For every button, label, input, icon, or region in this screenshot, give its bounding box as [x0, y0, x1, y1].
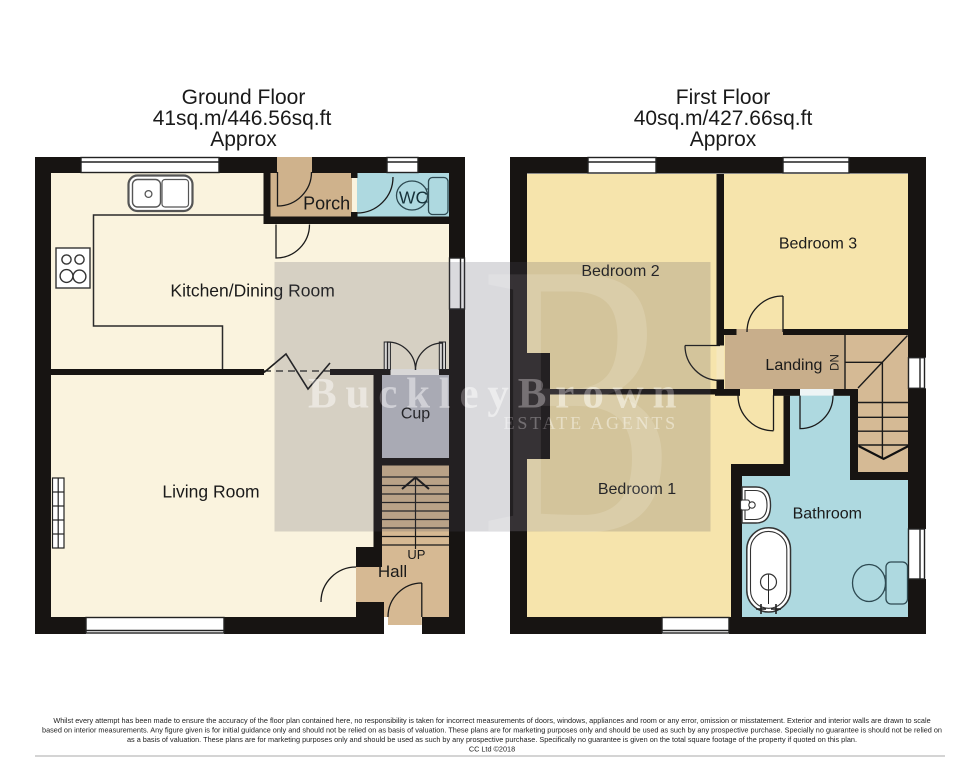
svg-text:ESTATE AGENTS: ESTATE AGENTS: [504, 413, 678, 433]
svg-text:Bathroom: Bathroom: [793, 505, 862, 522]
svg-text:Bedroom 3: Bedroom 3: [779, 236, 857, 253]
svg-text:CC Ltd ©2018: CC Ltd ©2018: [469, 745, 515, 754]
svg-text:Hall: Hall: [378, 562, 407, 581]
svg-text:Porch: Porch: [303, 194, 350, 214]
svg-text:BuckleyBrown: BuckleyBrown: [308, 371, 685, 418]
svg-text:First Floor: First Floor: [676, 86, 771, 109]
svg-text:DN: DN: [830, 354, 842, 371]
svg-text:Approx: Approx: [210, 128, 277, 151]
svg-text:Ground Floor: Ground Floor: [182, 86, 306, 109]
svg-text:Approx: Approx: [690, 128, 757, 151]
svg-text:as a basis of valuation. These: as a basis of valuation. These plans are…: [127, 735, 857, 744]
svg-text:UP: UP: [407, 547, 425, 562]
svg-text:40sq.m/427.66sq.ft: 40sq.m/427.66sq.ft: [634, 107, 813, 130]
svg-text:based on interior measurements: based on interior measurements. Any figu…: [42, 726, 942, 735]
svg-text:41sq.m/446.56sq.ft: 41sq.m/446.56sq.ft: [153, 107, 332, 130]
svg-text:WC: WC: [399, 187, 428, 207]
svg-text:Living Room: Living Room: [162, 481, 259, 501]
svg-text:Landing: Landing: [765, 357, 822, 374]
svg-text:Whilst every attempt has been: Whilst every attempt has been made to en…: [53, 716, 930, 725]
